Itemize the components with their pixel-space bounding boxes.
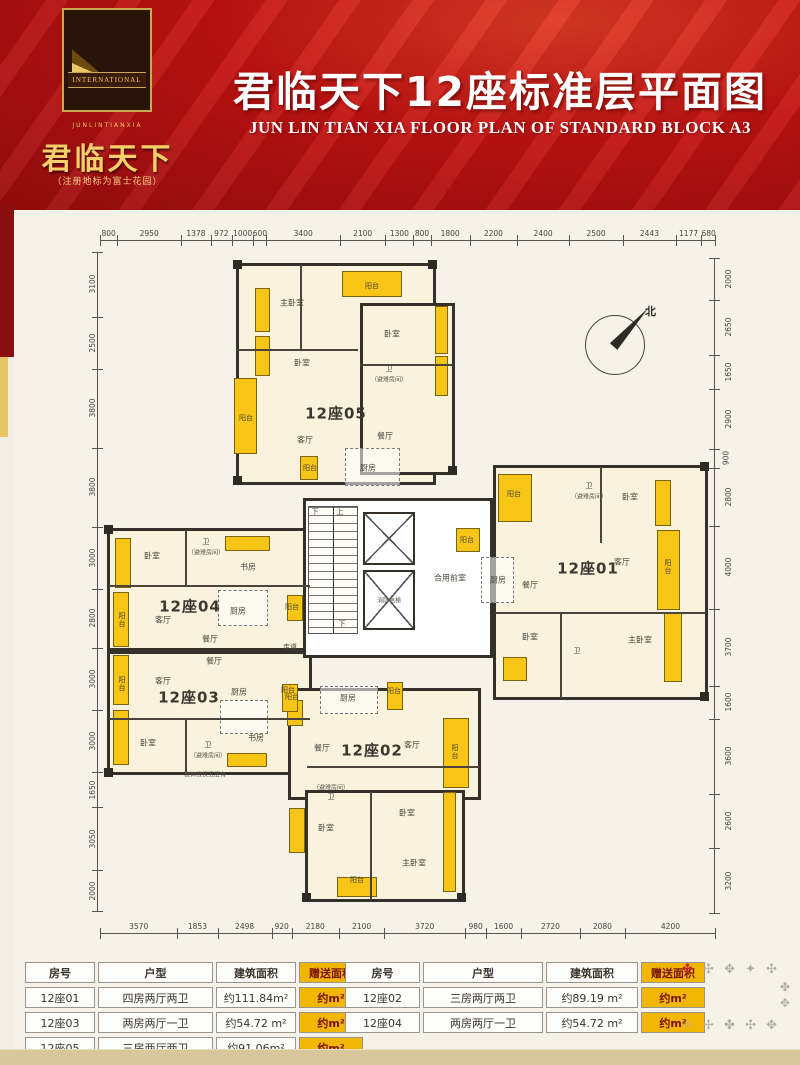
dimension-segment: 600	[253, 225, 266, 247]
dimension-label: 4000	[724, 558, 733, 577]
room-label: 卫	[574, 646, 581, 656]
room-label: 书房	[248, 733, 264, 744]
dimension-label: 2080	[593, 922, 612, 931]
dimension-segment: 2720	[521, 918, 580, 940]
dimension-segment: 2443	[623, 225, 676, 247]
dimension-segment: 3800	[84, 369, 106, 448]
dimension-segment: 900	[706, 449, 728, 468]
dimension-label: 600	[253, 229, 267, 238]
room-label: 客厅	[155, 615, 171, 626]
dimension-label: 1853	[188, 922, 207, 931]
dimension-segment: 1600	[706, 686, 728, 719]
dimension-label: 2800	[88, 609, 97, 628]
dimension-segment: 1650	[84, 772, 106, 806]
fire-elevator-label: 消防电梯	[377, 596, 401, 605]
dimension-label: 800	[101, 229, 115, 238]
dimension-segment: 1177	[676, 225, 701, 247]
brand-name: 君临天下	[10, 134, 205, 178]
ornament-glyphs: ✣ ✥ ✦ ✣	[703, 962, 780, 977]
room-label: （避难房间）	[188, 548, 224, 557]
dimension-label: 2500	[88, 333, 97, 352]
dimension-label: 1600	[724, 693, 733, 712]
dimension-label: 2000	[88, 882, 97, 901]
column	[233, 260, 242, 269]
dimension-segment: 3050	[84, 807, 106, 871]
room-label: 餐厅	[522, 580, 538, 591]
room-label: 厨房	[230, 606, 246, 617]
dimension-label: 980	[468, 922, 482, 931]
room-label: 阳台	[663, 559, 673, 575]
dimension-label: 2650	[724, 317, 733, 336]
table-cell: 12座04	[345, 1012, 420, 1033]
table-header-row: 房号户型建筑面积赠送面积	[25, 962, 363, 983]
dimension-segment: 3200	[706, 848, 728, 914]
page-title: 君临天下12座标准层平面图	[205, 58, 795, 118]
dimension-segment: 2600	[706, 794, 728, 848]
dimension-label: 1177	[679, 229, 698, 238]
room-label: 阳台	[239, 413, 253, 423]
dimension-label: 3700	[724, 638, 733, 657]
logo-small-line: JUNLINTIANXIA	[20, 122, 195, 129]
dimension-segment: 2200	[470, 225, 518, 247]
room-label: 客厅	[155, 676, 171, 687]
dimension-segment: 800	[413, 225, 430, 247]
dimension-label: 2498	[235, 922, 254, 931]
unit-label: 12座04	[159, 596, 221, 617]
table-header-row: 房号户型建筑面积赠送面积	[345, 962, 705, 983]
room-label: （避难房间）	[371, 375, 407, 384]
dimension-label: 2443	[640, 229, 659, 238]
dimension-label: 1000	[233, 229, 252, 238]
table-row: 12座01四房两厅两卫约111.84m²约m²	[25, 987, 363, 1008]
table-row: 12座03两房两厅一卫约54.72 m²约m²	[25, 1012, 363, 1033]
dimension-segment: 2080	[580, 918, 625, 940]
dimension-label: 3200	[724, 871, 733, 890]
dimension-label: 3000	[88, 732, 97, 751]
room-label: 阳台	[460, 535, 474, 545]
dimension-segment: 2100	[340, 225, 385, 247]
room-label: 餐厅	[202, 634, 218, 645]
dimension-label: 1800	[441, 229, 460, 238]
interior-wall	[370, 792, 372, 900]
ornament-row: ✤ ✣ ✥ ✦ ✣	[682, 962, 794, 977]
dimension-segment: 2900	[706, 389, 728, 449]
unit-info-table-left: 房号户型建筑面积赠送面积12座01四房两厅两卫约111.84m²约m²12座03…	[25, 962, 363, 1058]
column	[700, 692, 709, 701]
room-label: 卫	[205, 740, 212, 750]
room-label: 卧室	[522, 632, 538, 643]
dimension-segment: 1000	[232, 225, 254, 247]
ornament-column: ✤✥	[778, 980, 792, 1012]
dimension-label: 3600	[724, 747, 733, 766]
dimension-segment: 2000	[706, 258, 728, 300]
room-label: 厨房	[340, 693, 356, 704]
dimension-label: 3800	[88, 478, 97, 497]
dimension-segment: 3000	[84, 648, 106, 710]
dimension-segment: 2800	[84, 589, 106, 647]
dimension-segment: 800	[100, 225, 117, 247]
dimension-segment: 1378	[181, 225, 211, 247]
table-cell: 12座01	[25, 987, 95, 1008]
balcony	[255, 288, 270, 332]
column	[700, 462, 709, 471]
interior-wall	[109, 585, 310, 587]
room-label: 餐厅	[377, 431, 393, 442]
dimension-label: 920	[274, 922, 288, 931]
room-label: 卫	[328, 792, 335, 802]
room-label: 阳台	[117, 612, 127, 628]
dimension-segment: 1650	[706, 355, 728, 389]
stair-down-label: 下	[312, 507, 319, 517]
corridor-label: 走道	[283, 642, 297, 652]
table-header-cell: 户型	[98, 962, 213, 983]
room-label: 阳台	[350, 875, 364, 885]
room-label: 卧室	[622, 492, 638, 503]
plan-note: 装饰线仅五层有	[184, 770, 226, 779]
dimension-label: 1600	[494, 922, 513, 931]
dimension-ruler-left: 3100250038003800300028003000300016503050…	[84, 252, 106, 912]
table-cell: 四房两厅两卫	[98, 987, 213, 1008]
dimension-ruler-bottom: 3570185324989202180210037209801600272020…	[100, 918, 716, 940]
room-label: 客厅	[297, 435, 313, 446]
interior-wall	[560, 614, 562, 698]
dimension-segment: 2180	[292, 918, 339, 940]
room-label: 阳台	[285, 602, 299, 612]
decorative-seal-ornaments: ✤ ✣ ✥ ✦ ✣ ✤✥ ✧ ✢ ✤ ✣ ✥	[682, 962, 794, 977]
room-label: 阳台	[450, 744, 460, 760]
dimension-segment: 3570	[100, 918, 177, 940]
dimension-label: 2180	[306, 922, 325, 931]
room-label: 主卧室	[280, 298, 304, 309]
room-label: （避难房间）	[571, 492, 607, 501]
room-label: （避难房间）	[313, 783, 349, 792]
column	[457, 893, 466, 902]
dimension-label: 2900	[724, 409, 733, 428]
logo-band-text: INTERNATIONAL	[68, 72, 146, 88]
dimension-label: 2100	[353, 229, 372, 238]
room-label: 卫	[386, 364, 393, 374]
header-banner: INTERNATIONAL JUNLINTIANXIA 君临天下 （注册地标为富…	[0, 0, 800, 210]
dimension-segment: 1853	[177, 918, 217, 940]
dimension-segment: 4000	[706, 526, 728, 609]
dimension-segment: 1600	[486, 918, 521, 940]
dimension-label: 2720	[541, 922, 560, 931]
elevator-shaft	[363, 512, 415, 565]
dimension-label: 2200	[484, 229, 503, 238]
dimension-segment: 3800	[84, 448, 106, 527]
room-label: 阳台	[117, 676, 127, 692]
dimension-segment: 4200	[625, 918, 716, 940]
dimension-label: 3100	[88, 275, 97, 294]
table-cell: 12座02	[345, 987, 420, 1008]
unit-label: 12座02	[341, 740, 403, 761]
dimension-segment: 1300	[385, 225, 413, 247]
dimension-label: 2800	[724, 487, 733, 506]
table-cell: 约54.72 m²	[546, 1012, 638, 1033]
dimension-label: 3050	[88, 829, 97, 848]
column	[302, 893, 311, 902]
table-cell: 两房两厅一卫	[98, 1012, 213, 1033]
balcony	[115, 538, 131, 588]
table-header-cell: 房号	[345, 962, 420, 983]
ornament-row: ✧ ✢ ✤ ✣ ✥	[682, 1018, 780, 1033]
unit-label: 12座03	[158, 687, 220, 708]
dimension-label: 2500	[587, 229, 606, 238]
stair-down-label: 下	[339, 619, 346, 629]
balcony	[255, 336, 270, 376]
balcony	[225, 536, 270, 551]
room-label: 餐厅	[314, 743, 330, 754]
stair-up-label: 上	[337, 507, 344, 517]
room-label: 卧室	[294, 358, 310, 369]
dimension-ruler-top: 8002950137897210006003400210013008001800…	[100, 225, 716, 247]
brand-note: （注册地标为富士花园）	[10, 174, 205, 187]
column	[428, 260, 437, 269]
dimension-segment: 3600	[706, 719, 728, 794]
room-label: 卧室	[144, 551, 160, 562]
room-label: 餐厅	[206, 656, 222, 667]
unit-12-02-lower	[305, 790, 465, 902]
room-label: 厨房	[490, 575, 506, 586]
brand-logo: INTERNATIONAL	[62, 8, 152, 112]
table-cell: 两房两厅一卫	[423, 1012, 543, 1033]
room-label: 主卧室	[628, 635, 652, 646]
dimension-label: 1300	[390, 229, 409, 238]
room-label: 卧室	[384, 329, 400, 340]
table-row: 12座02三房两厅两卫约89.19 m²约m²	[345, 987, 705, 1008]
room-label: 阳台	[387, 686, 401, 696]
dimension-segment: 3700	[706, 609, 728, 686]
column	[233, 476, 242, 485]
column	[104, 525, 113, 534]
table-cell: 约m²	[641, 987, 705, 1008]
balcony	[227, 753, 267, 767]
header-left-strip	[0, 205, 14, 357]
column	[104, 768, 113, 777]
dimension-segment: 920	[272, 918, 292, 940]
room-label: 阳台	[507, 489, 521, 499]
room-label: 卧室	[140, 738, 156, 749]
dimension-label: 2600	[724, 811, 733, 830]
dimension-segment: 2100	[339, 918, 385, 940]
dimension-label: 2000	[724, 269, 733, 288]
shared-lobby-label: 合用前室	[434, 573, 466, 584]
page-subtitle: JUN LIN TIAN XIA FLOOR PLAN OF STANDARD …	[205, 118, 795, 138]
column	[448, 466, 457, 475]
dimension-label: 2100	[352, 922, 371, 931]
table-cell: 三房两厅两卫	[423, 987, 543, 1008]
interior-wall	[360, 364, 453, 366]
dimension-label: 680	[701, 229, 715, 238]
dimension-label: 3800	[88, 399, 97, 418]
room-label: 客厅	[404, 740, 420, 751]
ornament-red-glyph: ✤	[682, 962, 696, 977]
table-header-cell: 房号	[25, 962, 95, 983]
room-label: 卫	[203, 537, 210, 547]
room-label: 阳台	[365, 281, 379, 291]
table-header-cell: 建筑面积	[216, 962, 296, 983]
dimension-segment: 3100	[84, 252, 106, 317]
compass-icon	[585, 315, 645, 375]
interior-wall	[236, 349, 358, 351]
room-label: 卫	[586, 481, 593, 491]
dimension-segment: 2800	[706, 468, 728, 526]
dimension-label: 1650	[88, 780, 97, 799]
room-label: 厨房	[360, 463, 376, 474]
interior-wall	[600, 467, 602, 543]
dimension-segment: 1800	[431, 225, 470, 247]
kitchen-dashed	[220, 700, 268, 734]
room-label: 书房	[240, 562, 256, 573]
balcony	[435, 356, 448, 396]
dimension-segment: 2500	[569, 225, 623, 247]
interior-wall	[185, 720, 187, 773]
dimension-segment: 972	[211, 225, 232, 247]
dimension-label: 4200	[661, 922, 680, 931]
room-label: 阳台	[281, 685, 295, 695]
dimension-segment: 2498	[218, 918, 272, 940]
dimension-segment: 2950	[117, 225, 181, 247]
dimension-label: 1378	[186, 229, 205, 238]
dimension-segment: 980	[465, 918, 486, 940]
room-label: 卧室	[399, 808, 415, 819]
dimension-label: 1650	[724, 362, 733, 381]
balcony	[289, 808, 305, 853]
interior-wall	[495, 612, 706, 614]
interior-wall	[185, 530, 187, 585]
dimension-segment: 2400	[517, 225, 569, 247]
room-label: 主卧室	[402, 858, 426, 869]
dimension-label: 3400	[294, 229, 313, 238]
dimension-segment: 2500	[84, 317, 106, 369]
dimension-segment: 3400	[266, 225, 339, 247]
balcony	[655, 480, 671, 526]
dimension-ruler-right: 2000265016502900900280040003700160036002…	[706, 258, 728, 914]
table-cell: 约89.19 m²	[546, 987, 638, 1008]
balcony	[443, 792, 456, 892]
balcony	[435, 306, 448, 354]
dimension-label: 900	[722, 451, 731, 465]
table-header-cell: 建筑面积	[546, 962, 638, 983]
table-header-cell: 户型	[423, 962, 543, 983]
interior-wall	[109, 718, 310, 720]
dimension-segment: 2650	[706, 300, 728, 355]
dimension-label: 2400	[534, 229, 553, 238]
dimension-label: 3000	[88, 669, 97, 688]
room-label: 卧室	[318, 823, 334, 834]
dimension-segment: 3720	[384, 918, 465, 940]
table-cell: 约111.84m²	[216, 987, 296, 1008]
dimension-label: 3570	[129, 922, 148, 931]
dimension-segment: 680	[701, 225, 716, 247]
table-row: 12座04两房两厅一卫约54.72 m²约m²	[345, 1012, 705, 1033]
unit-info-table-right: 房号户型建筑面积赠送面积12座02三房两厅两卫约89.19 m²约m²12座04…	[345, 962, 705, 1033]
header-gold-strip	[0, 357, 8, 437]
dimension-segment: 3000	[84, 710, 106, 772]
dimension-label: 800	[415, 229, 429, 238]
room-label: 阳台	[303, 463, 317, 473]
interior-wall	[307, 766, 479, 768]
dimension-segment: 3000	[84, 527, 106, 589]
dimension-label: 972	[214, 229, 228, 238]
balcony	[664, 612, 682, 682]
table-cell: 12座03	[25, 1012, 95, 1033]
dimension-label: 2950	[140, 229, 159, 238]
dimension-label: 3000	[88, 548, 97, 567]
north-label: 北	[645, 303, 656, 319]
balcony	[503, 657, 527, 681]
bottom-band	[0, 1049, 800, 1065]
dimension-label: 3720	[415, 922, 434, 931]
dimension-segment: 2000	[84, 870, 106, 912]
staircase	[308, 506, 358, 634]
room-label: （避难房间）	[190, 751, 226, 760]
unit-label: 12座05	[305, 403, 367, 424]
table-cell: 约54.72 m²	[216, 1012, 296, 1033]
room-label: 厨房	[231, 687, 247, 698]
unit-label: 12座01	[557, 558, 619, 579]
